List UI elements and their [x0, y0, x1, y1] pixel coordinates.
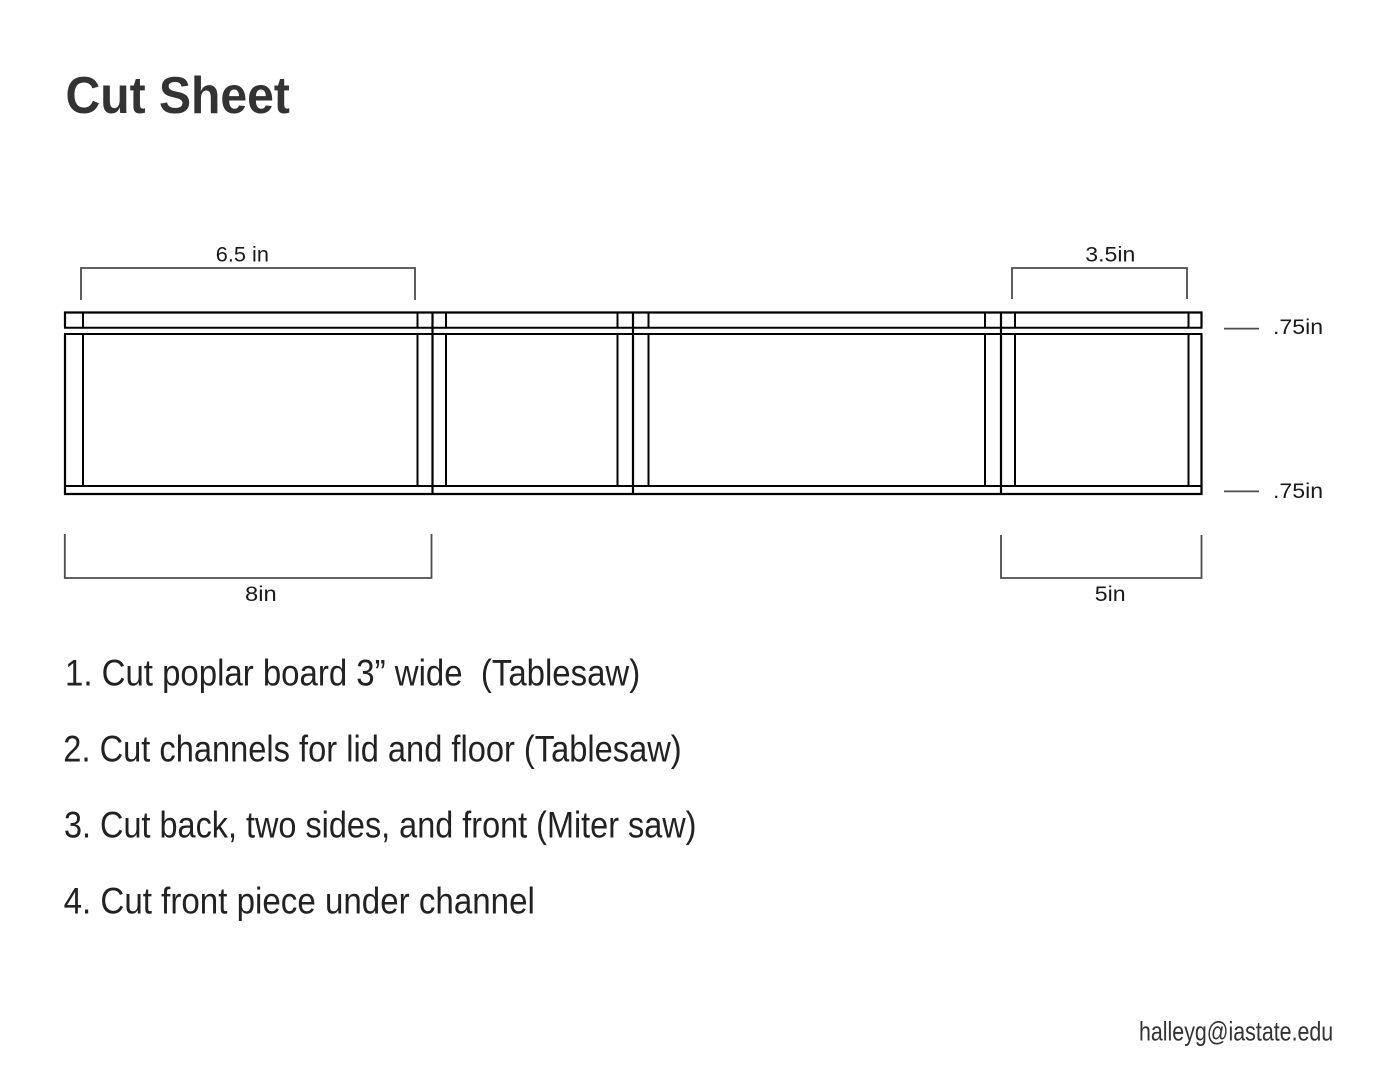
svg-text:5in: 5in [1095, 582, 1126, 606]
svg-text:6.5 in: 6.5 in [216, 243, 269, 267]
svg-text:1. Cut poplar board 3” wide (: 1. Cut poplar board 3” wide (Tablesaw) [65, 653, 640, 694]
svg-text:8in: 8in [245, 582, 277, 605]
svg-text:.75in: .75in [1273, 479, 1323, 503]
svg-text:4. Cut front piece under chann: 4. Cut front piece under channel [64, 881, 535, 922]
svg-text:3. Cut back, two sides, and fr: 3. Cut back, two sides, and front (Miter… [64, 806, 696, 846]
svg-text:.75in: .75in [1273, 315, 1323, 339]
svg-text:2. Cut channels for lid and fl: 2. Cut channels for lid and floor (Table… [63, 729, 681, 770]
svg-text:3.5in: 3.5in [1085, 242, 1135, 266]
svg-text:Cut Sheet: Cut Sheet [66, 66, 291, 124]
svg-text:halleyg@iastate.edu: halleyg@iastate.edu [1139, 1017, 1333, 1047]
